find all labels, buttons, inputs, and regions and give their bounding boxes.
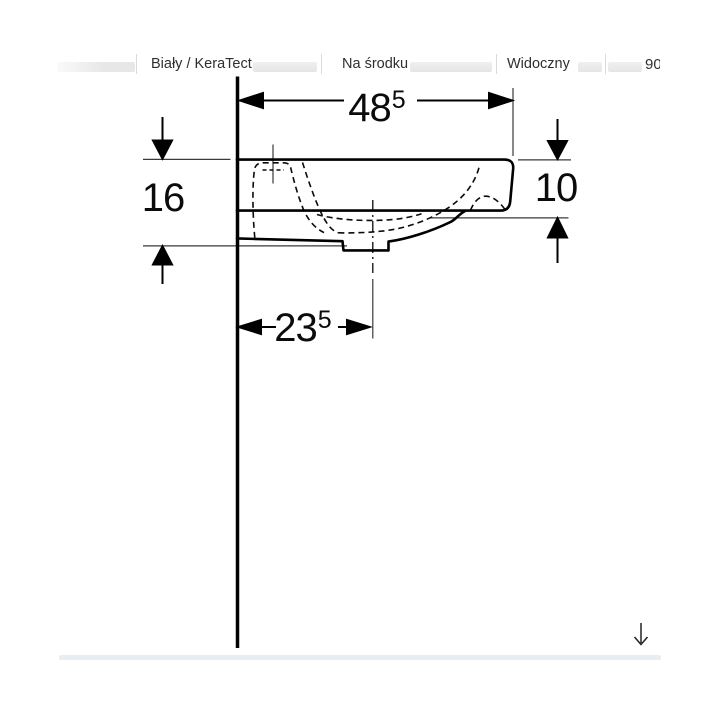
down-arrow-icon[interactable] [630, 619, 652, 649]
dim-label-width: 485 [348, 80, 405, 128]
dim-label-height-right: 10 [535, 168, 578, 208]
washbasin-outline [237, 160, 513, 251]
horizontal-scrollbar[interactable] [59, 655, 661, 660]
dim-label-drain-offset: 235 [274, 300, 331, 348]
page: Biały / KeraTect Na środku Widoczny 90 [0, 0, 720, 720]
basin-hidden-outline [253, 163, 505, 238]
dim-label-height-left: 16 [142, 178, 185, 218]
